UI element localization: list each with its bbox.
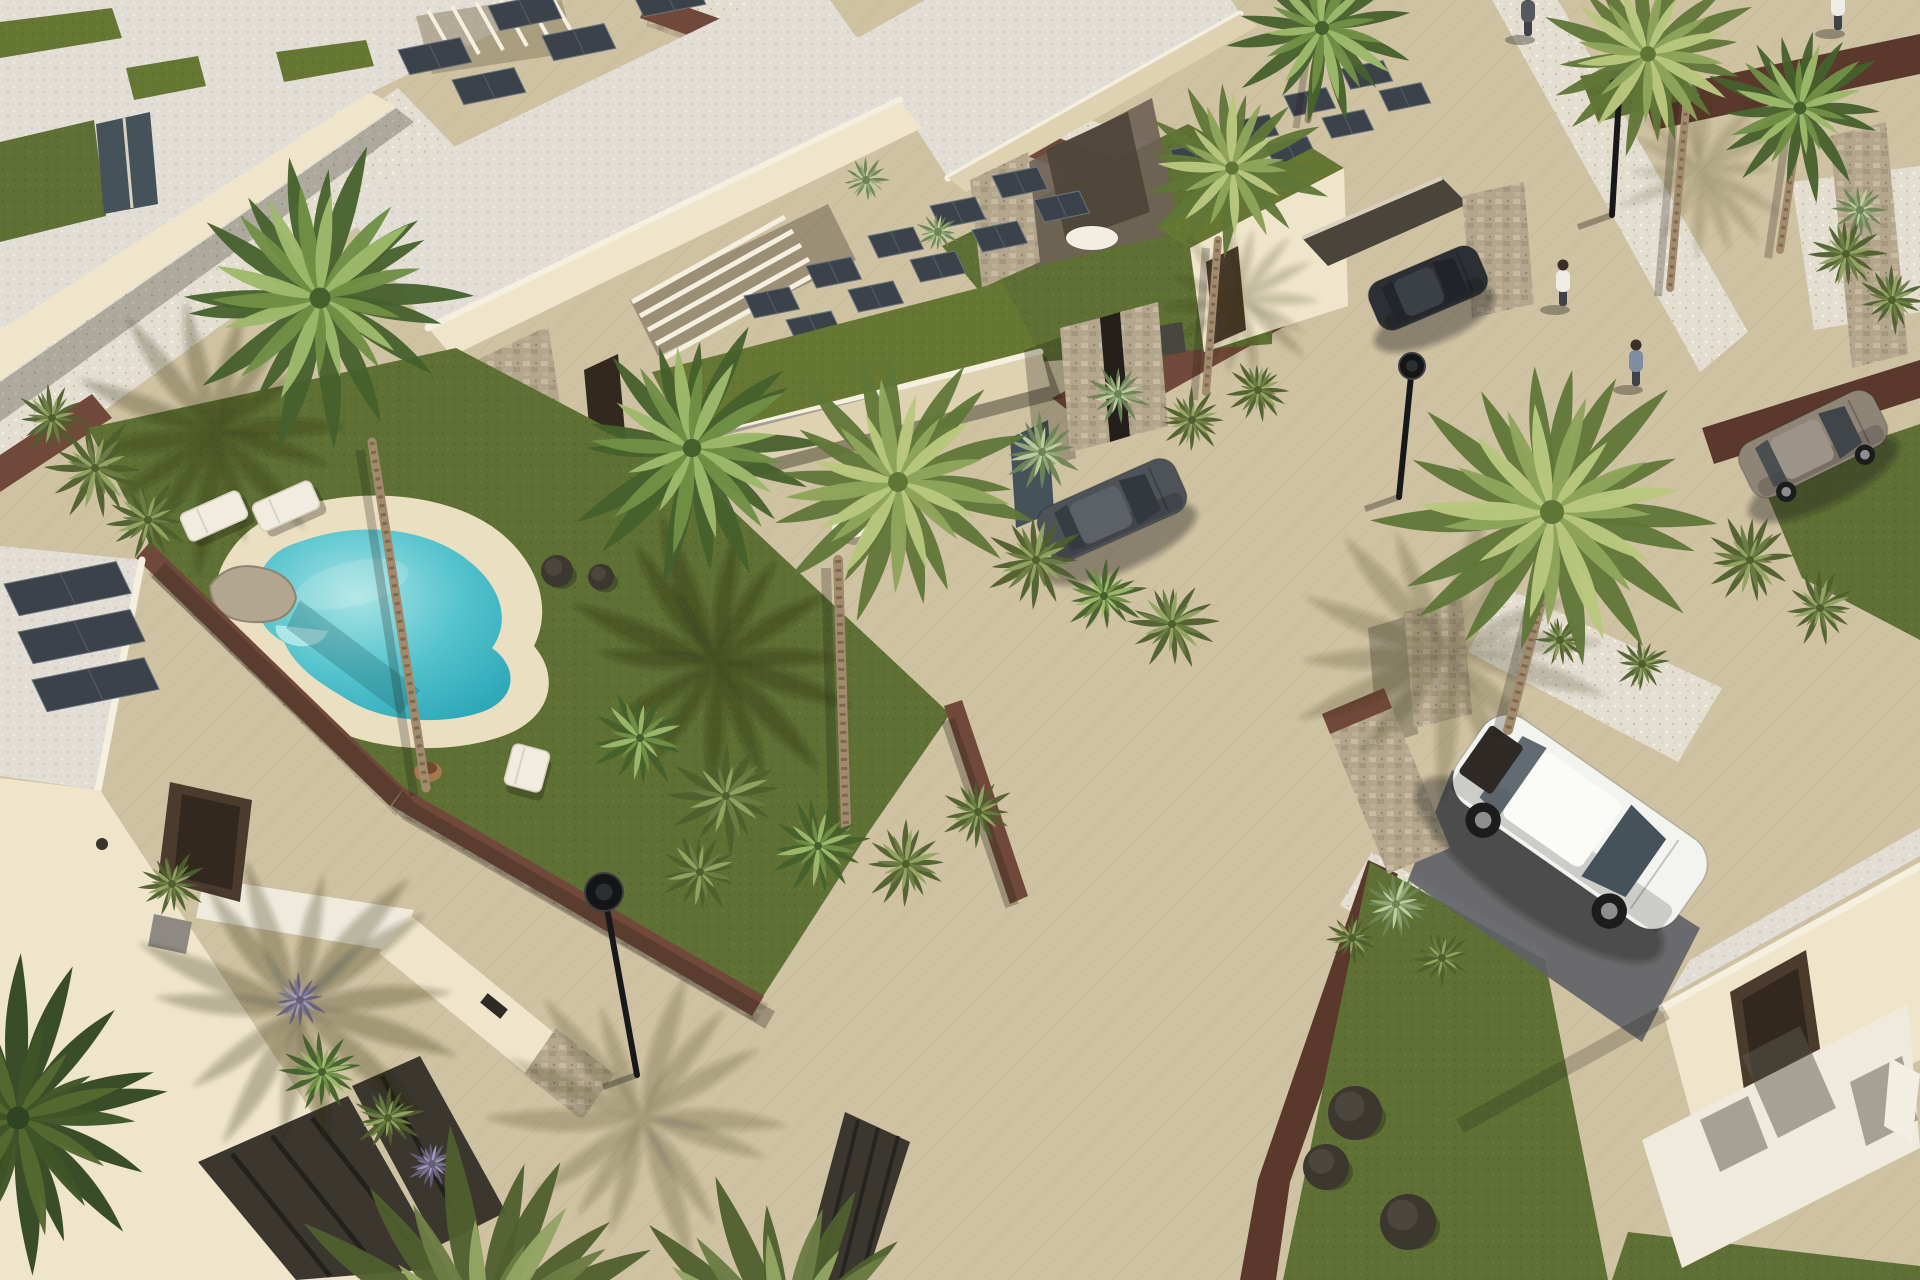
- porch-furniture: [1066, 226, 1118, 250]
- render-viewport: Aerial 3D architectural rendering of a m…: [0, 0, 1920, 1280]
- outdoor-kitchen-box: [1158, 322, 1186, 356]
- aerial-render: Aerial 3D architectural rendering of a m…: [0, 0, 1920, 1280]
- wall-light: [96, 838, 108, 850]
